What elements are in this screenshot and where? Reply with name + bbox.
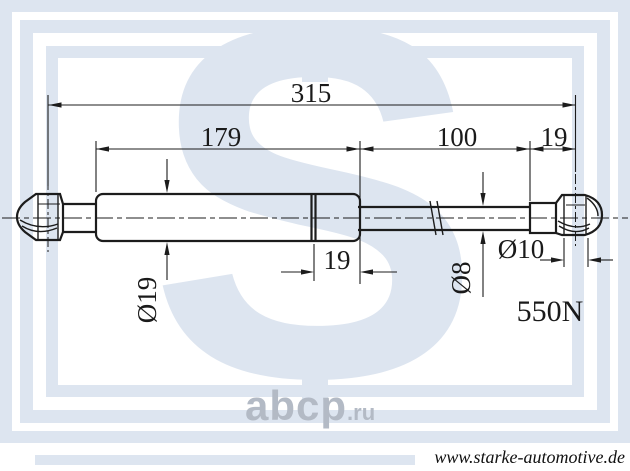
- dim-end-offset-label: 19: [541, 122, 568, 152]
- dimension-eye-diameter: Ø10: [498, 234, 613, 267]
- dim-rod-diameter-label: Ø8: [446, 262, 476, 295]
- dim-total-length-label: 315: [291, 78, 332, 108]
- dim-body-length-label: 179: [201, 122, 242, 152]
- dim-body-diameter-label: Ø19: [132, 277, 162, 324]
- dimension-rod-diameter: Ø8: [446, 172, 486, 297]
- gas-spring-technical-drawing: S abcp.ru: [0, 0, 630, 471]
- dim-collar-length-label: 19: [324, 245, 351, 275]
- dimension-collar-length: 19: [281, 244, 397, 281]
- force-rating-label: 550N: [517, 295, 584, 328]
- dim-rod-length-label: 100: [437, 122, 478, 152]
- dimension-total-length: 315: [48, 78, 576, 186]
- right-ball-socket: [530, 195, 602, 235]
- website-url: www.starke-automotive.de: [434, 447, 625, 468]
- left-ball-socket: [17, 194, 63, 240]
- dim-eye-diameter-label: Ø10: [498, 234, 545, 264]
- gas-spring-diagram: 315 179 100 19 19: [0, 0, 630, 471]
